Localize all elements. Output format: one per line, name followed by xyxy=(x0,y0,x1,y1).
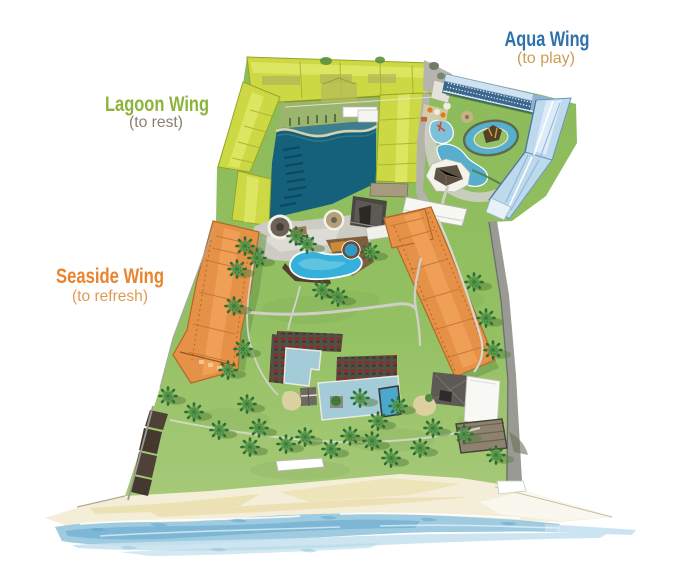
svg-text:(to rest): (to rest) xyxy=(129,114,183,131)
svg-text:Lagoon Wing: Lagoon Wing xyxy=(105,93,209,116)
svg-text:Seaside Wing: Seaside Wing xyxy=(56,265,164,288)
svg-text:Aqua Wing: Aqua Wing xyxy=(505,28,590,51)
svg-text:(to refresh): (to refresh) xyxy=(72,288,148,305)
svg-text:(to play): (to play) xyxy=(517,50,575,67)
